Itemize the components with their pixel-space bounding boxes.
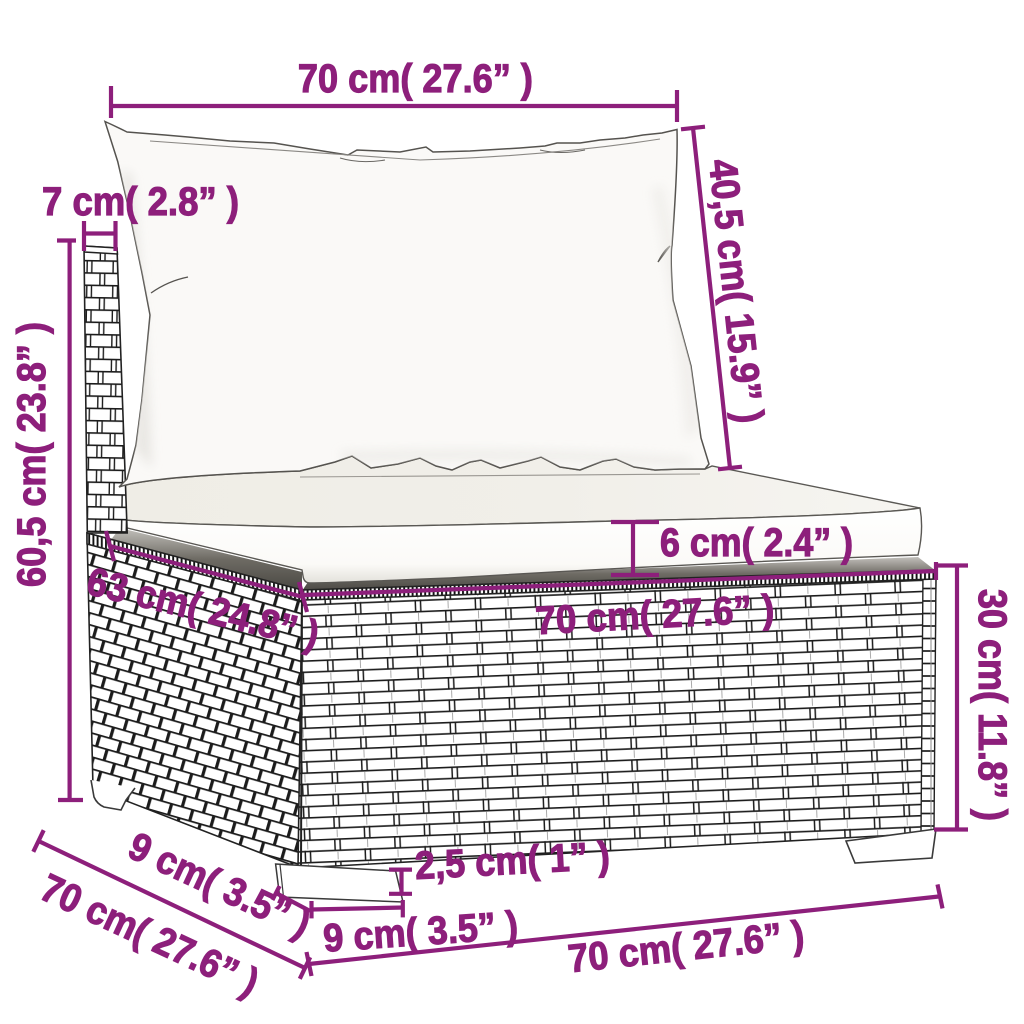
svg-text:30 cm( 11.8” ): 30 cm( 11.8” ) xyxy=(970,589,1014,821)
svg-text:60,5 cm( 23.8” ): 60,5 cm( 23.8” ) xyxy=(10,322,54,587)
svg-text:70 cm( 27.6” ): 70 cm( 27.6” ) xyxy=(298,57,533,101)
svg-text:7 cm( 2.8” ): 7 cm( 2.8” ) xyxy=(42,180,239,224)
svg-text:6 cm( 2.4” ): 6 cm( 2.4” ) xyxy=(660,521,853,565)
